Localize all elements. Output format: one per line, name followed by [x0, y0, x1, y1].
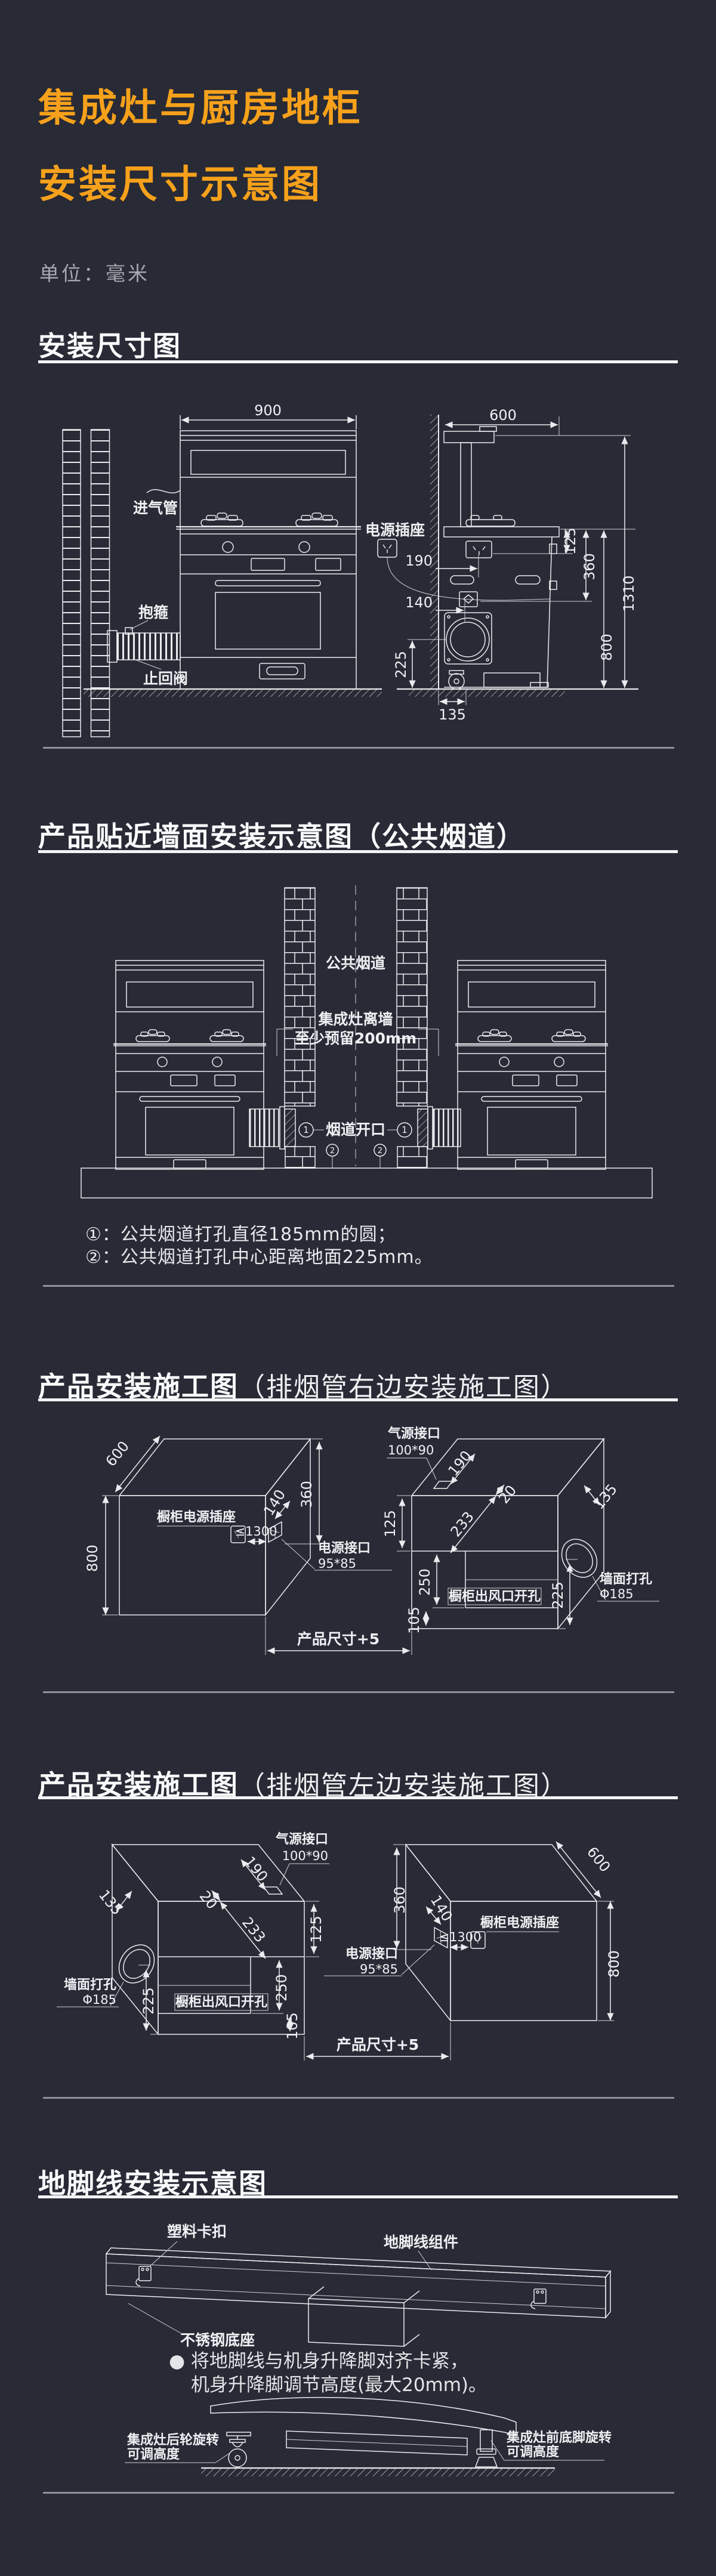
wall-section — [430, 415, 439, 689]
rear-wheel-label-1: 集成灶后轮旋转 — [126, 2432, 219, 2448]
dim-label-900: 900 — [254, 402, 282, 419]
note-bullet: ● — [169, 2350, 185, 2372]
cabinet-socket-label: 橱柜电源插座 — [157, 1509, 236, 1525]
section2-title: 产品贴近墙面安装示意图（公共烟道） — [38, 815, 525, 854]
cabinet-socket-label: 橱柜电源插座 — [480, 1915, 559, 1931]
dim-label-800: 800 — [606, 1950, 622, 1978]
gas-port-label: 气源接口 — [387, 1426, 440, 1441]
rear-caster-wheel — [229, 2436, 246, 2467]
gas-port-size: 100*90 — [282, 1849, 328, 1863]
mirrored-geometry — [57, 1842, 614, 2061]
wall-hole-dia: Φ185 — [82, 1993, 116, 2007]
outlet-cut-label: 橱柜出风口开孔 — [175, 1994, 267, 2010]
dim-label-800: 800 — [598, 634, 615, 661]
front-foot-label-1: 集成灶前底脚旋转 — [506, 2430, 612, 2445]
dim-label-233: 233 — [239, 1914, 269, 1945]
power-port-size: 95*85 — [360, 1962, 398, 1976]
marker-1a: 1 — [303, 1125, 309, 1135]
dim-label-125: 125 — [308, 1916, 325, 1943]
dim-label-190: 190 — [405, 552, 433, 569]
divider-4 — [43, 2097, 674, 2099]
gap-label-2: 至少预留200mm — [295, 1030, 416, 1047]
wall-hole-label: 墙面打孔 — [600, 1572, 652, 1587]
dim-label-135: 135 — [439, 706, 466, 723]
power-socket-icon — [378, 539, 397, 557]
base-leader — [128, 2303, 181, 2333]
dim-label-233: 233 — [447, 1508, 477, 1540]
marker-2b: 2 — [378, 1147, 382, 1156]
check-valve-label: 止回阀 — [143, 670, 188, 687]
plastic-clip-left — [136, 2266, 151, 2286]
dim-label-600: 600 — [584, 1843, 614, 1875]
front-foot-label-2: 可调高度 — [507, 2444, 560, 2460]
base-label: 不锈钢底座 — [180, 2331, 255, 2349]
outlet-cut-label: 橱柜出风口开孔 — [449, 1589, 541, 1604]
title-line1: 集成灶与厨房地柜 — [38, 87, 363, 131]
marker-2a: 2 — [330, 1147, 335, 1156]
dim-label-1300: ≤1300 — [234, 1524, 277, 1539]
dim-label-105: 105 — [406, 1607, 422, 1634]
dim-label-360: 360 — [391, 1886, 408, 1914]
divider-5 — [43, 2492, 674, 2494]
dim-label-600: 600 — [102, 1438, 132, 1469]
dim-label-600s: 600 — [489, 407, 517, 424]
section1-underline — [38, 360, 678, 363]
ground-band — [81, 1168, 652, 1198]
note-line-1: 将地脚线与机身升降脚对齐卡紧， — [191, 2350, 468, 2372]
burner-right — [296, 513, 338, 526]
section5-underline — [38, 2195, 678, 2198]
burner-left — [201, 513, 243, 526]
divider-3 — [43, 1691, 674, 1693]
wall-hole-dia: Φ185 — [600, 1587, 634, 1601]
dim-label-20: 20 — [196, 1888, 221, 1912]
dim-label-250: 250 — [273, 1974, 290, 2002]
gas-port-size: 100*90 — [388, 1443, 434, 1457]
dim-label-140: 140 — [260, 1487, 289, 1519]
dim-label-360: 360 — [581, 553, 598, 580]
divider-2 — [43, 1285, 674, 1287]
dim-label-135: 135 — [590, 1481, 621, 1512]
marker-1b: 1 — [402, 1125, 408, 1135]
section3-underline — [38, 1398, 678, 1401]
dim-label-1310: 1310 — [621, 575, 637, 611]
section2-underline — [38, 850, 678, 853]
section4-underline — [38, 1796, 678, 1799]
dim-label-135: 135 — [95, 1886, 126, 1918]
page: 集成灶与厨房地柜安装尺寸示意图 单位：毫米 安装尺寸图 — [0, 0, 716, 2576]
dim-225 — [408, 640, 446, 688]
title-line2: 安装尺寸示意图 — [38, 163, 322, 207]
product-dim-label: 产品尺寸+5 — [337, 2036, 419, 2053]
dim-label-190: 190 — [241, 1853, 271, 1885]
install-plan-right: 600 800 360 140 橱柜电源插座 ≤1300 电源接口 95*85 … — [39, 1408, 677, 1673]
left-stove-front — [113, 960, 266, 1169]
dim-140 — [436, 599, 465, 622]
dim-label-225: 225 — [550, 1582, 566, 1609]
opening-label: 烟道开口 — [326, 1121, 385, 1138]
flue-note-2: ②：公共烟道打孔中心距离地面225mm。 — [85, 1242, 433, 1268]
dim-label-140: 140 — [405, 594, 433, 611]
assembly-label: 地脚线组件 — [384, 2234, 458, 2251]
install-dimension-drawing: 进气管 抱箍 止回阀 — [39, 404, 677, 750]
gas-port-label: 气源接口 — [275, 1831, 328, 1847]
dim-label-140: 140 — [427, 1892, 456, 1925]
dim-label-125: 125 — [562, 527, 579, 555]
clip-leader — [150, 2241, 177, 2266]
clamp-leader — [130, 620, 148, 629]
unit-label: 单位：毫米 — [39, 258, 150, 286]
gap-label-1: 集成灶离墙 — [317, 1011, 393, 1028]
power-port-label: 电源接口 — [318, 1541, 371, 1556]
product-dim-label: 产品尺寸+5 — [297, 1630, 379, 1648]
dim-label-360: 360 — [298, 1481, 315, 1508]
dim-label-1300: ≤1300 — [439, 1930, 481, 1944]
clamp-label: 抱箍 — [138, 604, 168, 621]
power-port-size: 95*85 — [318, 1556, 356, 1571]
rear-wheel-label-2: 可调高度 — [127, 2447, 180, 2462]
dim-label-190: 190 — [445, 1447, 475, 1479]
flue-label: 公共烟道 — [326, 955, 385, 972]
dim-label-250: 250 — [416, 1568, 433, 1596]
dim-label-225: 225 — [393, 651, 409, 678]
section3-title-main: 产品安装施工图 — [38, 1370, 239, 1403]
dim-label-125: 125 — [382, 1510, 399, 1537]
divider-1 — [43, 747, 674, 749]
power-socket-label: 电源插座 — [365, 521, 425, 539]
dim-label-800: 800 — [84, 1545, 101, 1572]
clip-label: 塑料卡扣 — [167, 2223, 227, 2240]
dim-label-20: 20 — [495, 1482, 520, 1506]
power-port-label: 电源接口 — [345, 1947, 398, 1962]
stove-base-profile — [201, 2398, 555, 2476]
assembly-leader — [418, 2251, 431, 2270]
shared-flue-drawing: 公共烟道 集成灶离墙 至少预留200mm 1 1 2 — [39, 877, 677, 1265]
right-stove-front — [455, 960, 608, 1169]
front-adjustable-foot — [476, 2430, 497, 2467]
section1-title: 安装尺寸图 — [38, 325, 181, 364]
wall-hole-label: 墙面打孔 — [64, 1978, 116, 1993]
page-title: 集成灶与厨房地柜安装尺寸示意图 — [38, 70, 363, 223]
dim-label-225: 225 — [140, 1987, 157, 2015]
gas-inlet-label: 进气管 — [133, 499, 178, 517]
dim-label-105: 105 — [284, 2012, 301, 2040]
base-feet-drawing: 集成灶后轮旋转 可调高度 集成灶前底脚旋转 可调高度 — [39, 2377, 677, 2491]
check-valve-leader — [135, 660, 161, 669]
install-plan-left: 600 800 360 140 橱柜电源插座 ≤1300 电源接口 95*85 … — [39, 1814, 677, 2085]
skirting-drawing: 塑料卡扣 地脚线组件 不锈钢底座 — [39, 2210, 677, 2371]
